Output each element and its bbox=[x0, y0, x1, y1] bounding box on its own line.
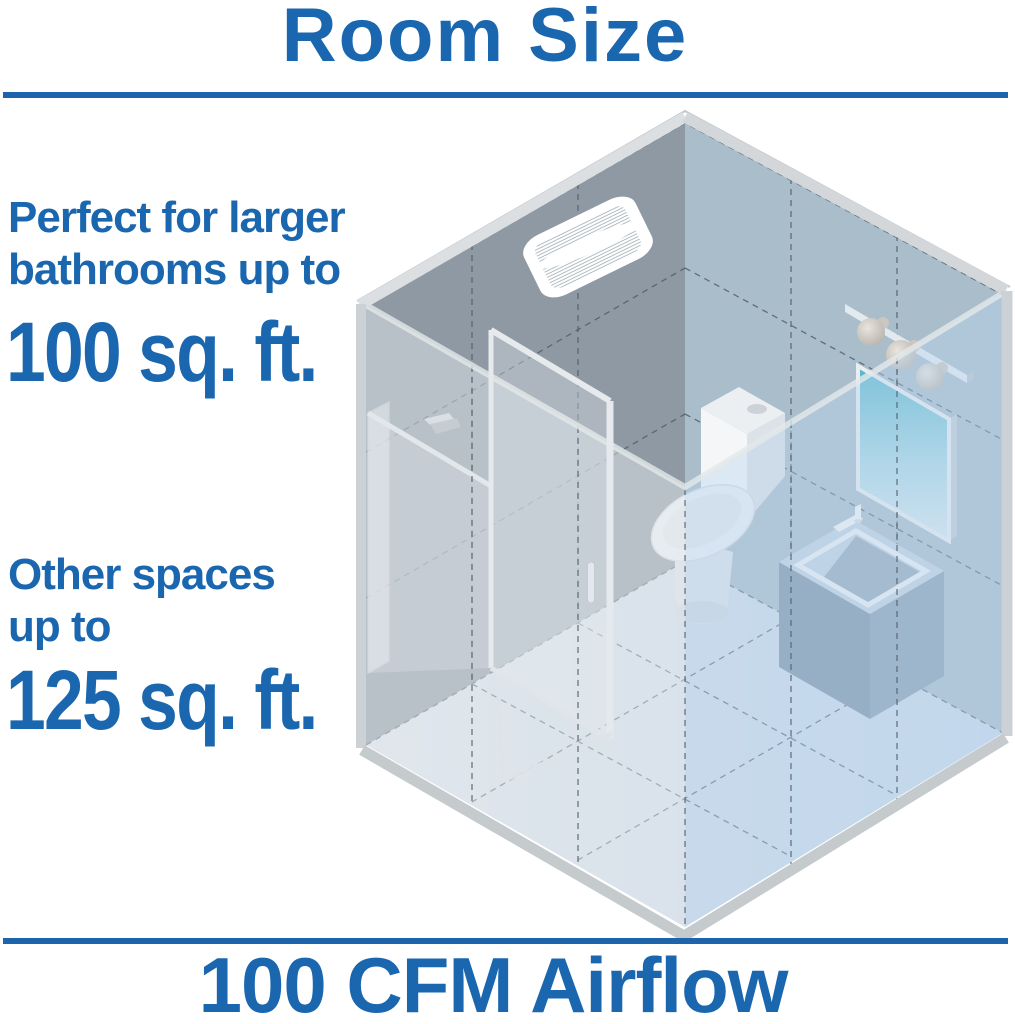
callout-line: bathrooms up to bbox=[8, 244, 345, 296]
infographic-page: Room Size bbox=[0, 0, 1015, 1024]
callout-line: Perfect for larger bbox=[8, 192, 345, 244]
value-100-sqft: 100 sq. ft. bbox=[6, 310, 317, 394]
callout-other-spaces: Other spaces up to bbox=[8, 549, 275, 653]
bathroom-illustration bbox=[0, 0, 1015, 1024]
airflow-label: 100 CFM Airflow bbox=[199, 946, 788, 1024]
callout-line: up to bbox=[8, 601, 275, 653]
callout-line: Other spaces bbox=[8, 549, 275, 601]
value-125-sqft: 125 sq. ft. bbox=[6, 658, 317, 742]
callout-larger-bathrooms: Perfect for larger bathrooms up to bbox=[8, 192, 345, 296]
